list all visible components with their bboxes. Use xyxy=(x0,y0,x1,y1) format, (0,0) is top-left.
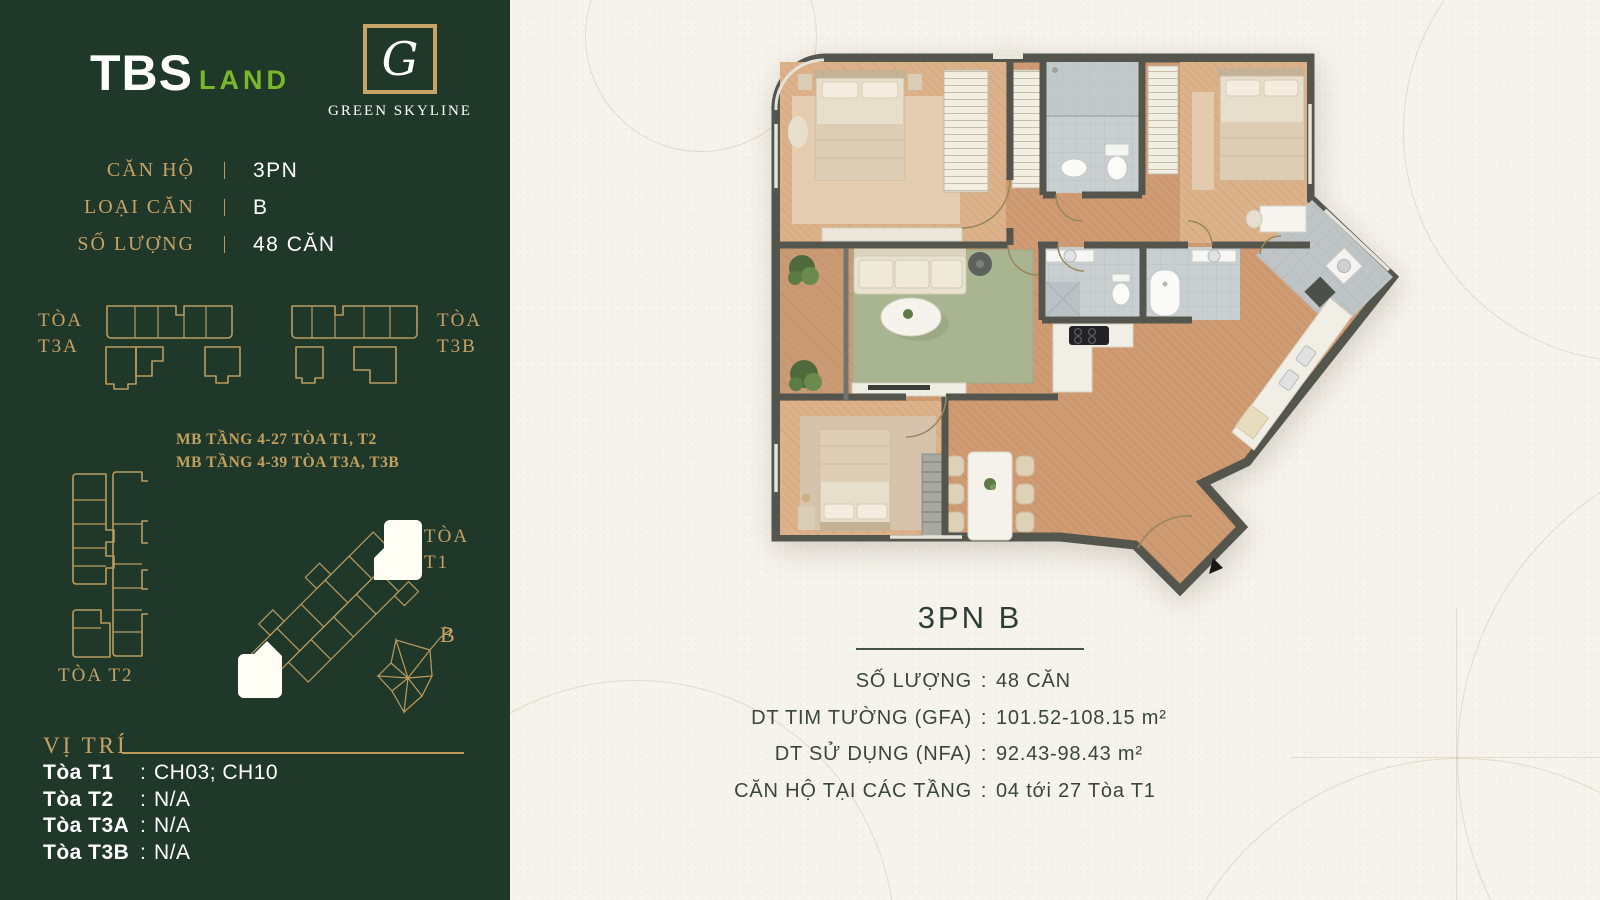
location-row-t3b: Tòa T3B : N/A xyxy=(43,840,483,867)
spec-value: B xyxy=(253,196,510,220)
tower-t3b-label: TÒA T3B xyxy=(437,308,482,360)
tbs-logo-text: TBS xyxy=(90,48,193,98)
compass-north-label: B xyxy=(440,622,457,648)
tower-t2-diagram xyxy=(52,460,148,664)
decor-arc xyxy=(1403,0,1600,362)
unit-row-nfa: DT SỬ DỤNG (NFA) : 92.43-98.43 m² xyxy=(620,737,1320,774)
land-logo-text: LAND xyxy=(193,67,290,98)
divider-line xyxy=(224,162,225,179)
location-row-t2: Tòa T2 : N/A xyxy=(43,787,483,814)
spec-row-quantity: SỐ LƯỢNG 48 CĂN xyxy=(0,226,510,263)
spec-row-unit-type: CĂN HỘ 3PN xyxy=(0,152,510,189)
spec-value: 48 CĂN xyxy=(253,233,510,257)
unit-info: 3PN B SỐ LƯỢNG : 48 CĂN DT TIM TƯỜNG (GF… xyxy=(620,598,1320,810)
location-row-t3a: Tòa T3A : N/A xyxy=(43,813,483,840)
location-title-rule xyxy=(122,752,464,754)
floor-range-note: MB TẦNG 4-27 TÒA T1, T2 MB TẦNG 4-39 TÒA… xyxy=(176,428,399,474)
divider-line xyxy=(224,199,225,216)
spec-row-layout: LOẠI CĂN B xyxy=(0,189,510,226)
tower-t3b-diagram xyxy=(278,290,430,392)
spec-label: LOẠI CĂN xyxy=(0,196,195,219)
dining-area xyxy=(946,452,1034,540)
decor-arc xyxy=(1457,439,1600,900)
location-row-t1: Tòa T1 : CH03; CH10 xyxy=(43,760,483,787)
floor-plan xyxy=(740,40,1420,600)
unit-row-gfa: DT TIM TƯỜNG (GFA) : 101.52-108.15 m² xyxy=(620,700,1320,737)
project-name: GREEN SKYLINE xyxy=(322,103,478,120)
brochure-page: TBS LAND G GREEN SKYLINE CĂN HỘ 3PN LOẠI… xyxy=(0,0,1600,900)
tower-t1-label: TÒA T1 xyxy=(424,524,469,576)
location-table: Tòa T1 : CH03; CH10 Tòa T2 : N/A Tòa T3A… xyxy=(43,760,483,866)
spec-value: 3PN xyxy=(253,159,510,183)
sidebar: TBS LAND G GREEN SKYLINE CĂN HỘ 3PN LOẠI… xyxy=(0,0,510,900)
tbs-land-logo: TBS LAND xyxy=(90,48,290,98)
decor-line xyxy=(1291,757,1600,758)
tower-t3a-label: TÒA T3A xyxy=(38,308,83,360)
unit-info-table: SỐ LƯỢNG : 48 CĂN DT TIM TƯỜNG (GFA) : 1… xyxy=(620,664,1320,810)
green-skyline-logo: G GREEN SKYLINE xyxy=(322,24,478,120)
tower-t2-label: TÒA T2 xyxy=(58,663,134,689)
unit-title-rule xyxy=(856,648,1084,650)
monogram-g: G xyxy=(382,36,419,82)
location-title: VỊ TRÍ xyxy=(43,733,128,759)
living-room xyxy=(852,248,1033,396)
spec-label: CĂN HỘ xyxy=(0,159,195,182)
monogram-frame: G xyxy=(363,24,437,94)
spec-table: CĂN HỘ 3PN LOẠI CĂN B SỐ LƯỢNG 48 CĂN xyxy=(0,152,510,263)
unit-title: 3PN B xyxy=(620,598,1320,636)
divider-line xyxy=(224,236,225,253)
unit-row-floors: CĂN HỘ TẠI CÁC TẦNG : 04 tới 27 Tòa T1 xyxy=(620,773,1320,810)
tower-t3a-diagram xyxy=(93,290,245,392)
spec-label: SỐ LƯỢNG xyxy=(0,233,195,256)
unit-row-quantity: SỐ LƯỢNG : 48 CĂN xyxy=(620,664,1320,701)
decor-line xyxy=(1456,608,1457,900)
plan-panel: 3PN B SỐ LƯỢNG : 48 CĂN DT TIM TƯỜNG (GF… xyxy=(510,0,1600,900)
